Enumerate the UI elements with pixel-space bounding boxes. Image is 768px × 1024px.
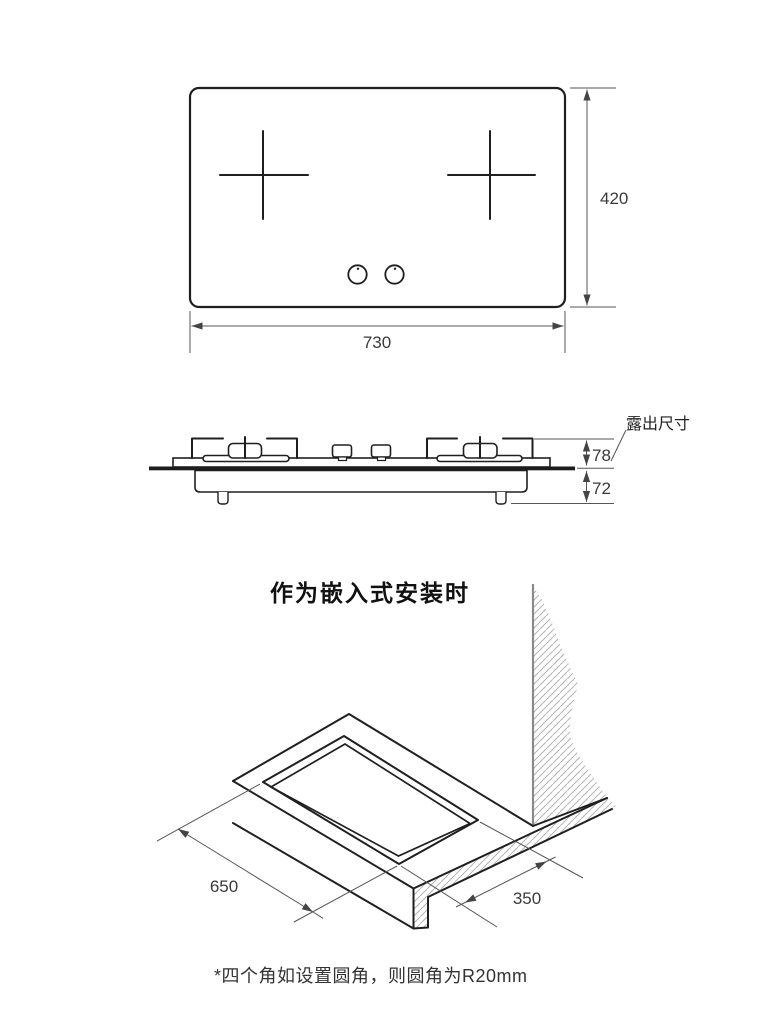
counter-left-edge	[233, 714, 349, 781]
knob-stem	[339, 457, 347, 461]
cutout-length-label: 650	[210, 877, 238, 896]
below-counter-label: 72	[592, 479, 611, 498]
counter-front-bottom-edge	[233, 823, 414, 929]
callout-leader	[611, 430, 626, 461]
cutout-depth-label: 350	[513, 889, 541, 908]
dimension-650: 650	[157, 784, 397, 922]
cooktop-dimension-drawing: 420 730	[0, 0, 768, 1024]
counter-section-lower-edge	[428, 809, 612, 897]
foot-left	[218, 492, 228, 504]
wall-hatch	[533, 588, 607, 826]
burner-left-side	[192, 437, 297, 462]
body-tub	[195, 471, 527, 493]
counter-edge-section-hatch	[414, 798, 617, 897]
counter-front-top-edge	[233, 781, 414, 889]
width-dim-label: 730	[363, 333, 391, 352]
height-dim-label: 420	[600, 189, 628, 208]
knob-tick	[394, 268, 396, 270]
burner-right-side	[427, 437, 533, 462]
knob	[333, 445, 352, 457]
top-view: 420 730	[190, 88, 628, 353]
side-view: 78 72 露出尺寸	[149, 415, 690, 504]
exposed-dimension-callout: 露出尺寸	[626, 415, 690, 433]
foot-right	[496, 492, 506, 504]
above-counter-label: 78	[592, 446, 611, 465]
cooktop-outline	[190, 88, 565, 307]
embedded-view-title: 作为嵌入式安装时	[270, 580, 470, 606]
corner-radius-footnote: *四个角如设置圆角，则圆角为R20mm	[214, 966, 528, 986]
dimension-730: 730	[190, 311, 565, 353]
counter-back-edge	[349, 714, 533, 826]
dimension-diagram-page: 420 730	[0, 0, 768, 1024]
notch-bottom	[414, 928, 429, 929]
embedded-view: 作为嵌入式安装时	[157, 580, 616, 986]
knob-tick	[357, 268, 359, 270]
cutout-opening	[263, 736, 478, 864]
knob-stem	[378, 457, 386, 461]
knob	[372, 445, 391, 457]
dimension-420: 420	[570, 88, 628, 307]
